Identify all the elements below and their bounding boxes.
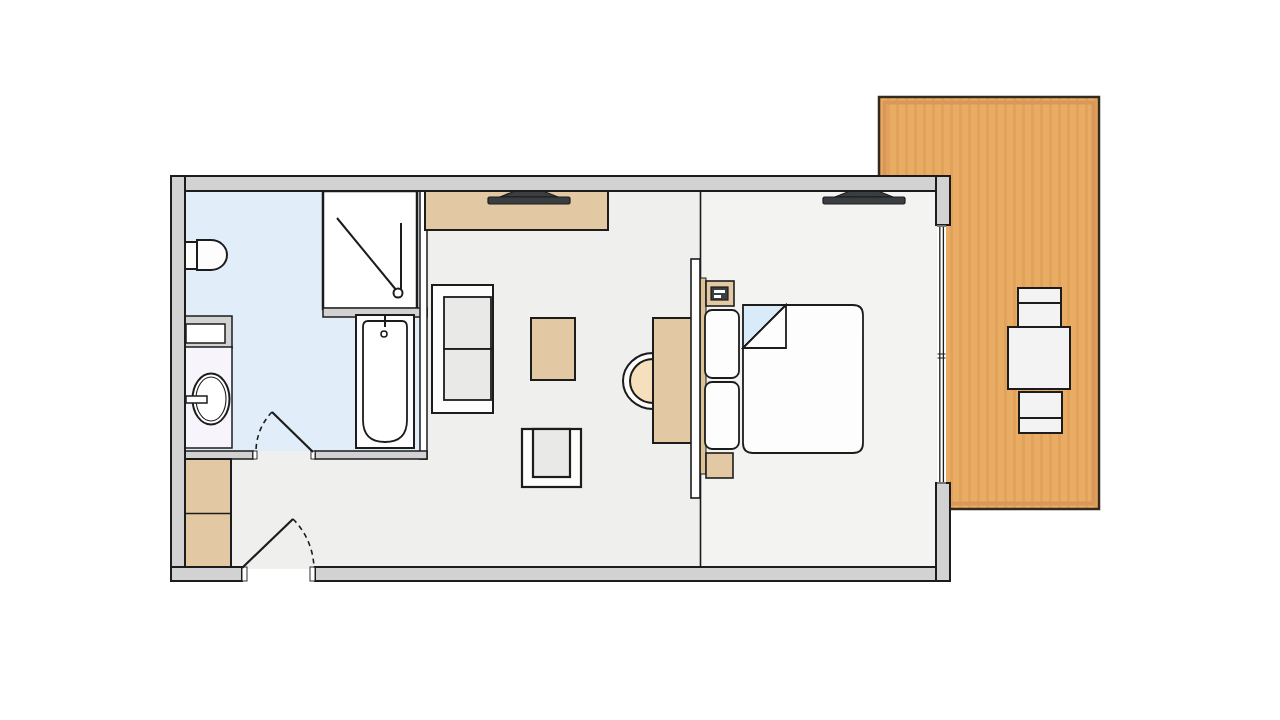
shower-icon [323, 191, 417, 309]
bathroom-wall [315, 451, 427, 459]
wall-left [171, 176, 185, 581]
bathroom-wall [185, 451, 253, 459]
door-jamb [310, 567, 315, 581]
telephone-icon [711, 287, 728, 300]
sofa-cushion [444, 349, 491, 400]
floor-plan-image [0, 0, 1280, 720]
armchair-icon [522, 429, 581, 487]
pillow-icon [705, 382, 739, 449]
door-jamb [253, 451, 257, 459]
wall-bottom [171, 567, 242, 581]
wall-right [936, 176, 950, 225]
wall-right [936, 483, 950, 581]
sink-vanity-icon [184, 347, 232, 448]
door-jamb [311, 451, 315, 459]
headboard-partition-icon [691, 259, 700, 498]
wall-top [171, 176, 950, 191]
coffee-table-icon [531, 318, 575, 380]
pillow-icon [705, 310, 739, 378]
bathtub-icon [356, 315, 414, 448]
shelf-icon [186, 324, 225, 343]
nightstand-icon [706, 453, 733, 478]
sofa-icon [432, 285, 493, 413]
sofa-cushion [444, 297, 491, 349]
desk-icon [653, 318, 692, 443]
faucet-icon [186, 396, 207, 403]
floor-plan-svg [0, 0, 1280, 720]
bathroom-partition-wall [420, 191, 427, 459]
outdoor-chair-icon [1019, 392, 1062, 433]
toilet-icon [185, 240, 227, 270]
nightstand-icon [706, 281, 734, 306]
door-jamb [242, 567, 247, 581]
outdoor-table-icon [1008, 327, 1070, 389]
wall-bottom [315, 567, 950, 581]
double-bed-icon [743, 305, 863, 453]
window-icon [937, 225, 946, 484]
outdoor-chair-icon [1018, 288, 1061, 327]
